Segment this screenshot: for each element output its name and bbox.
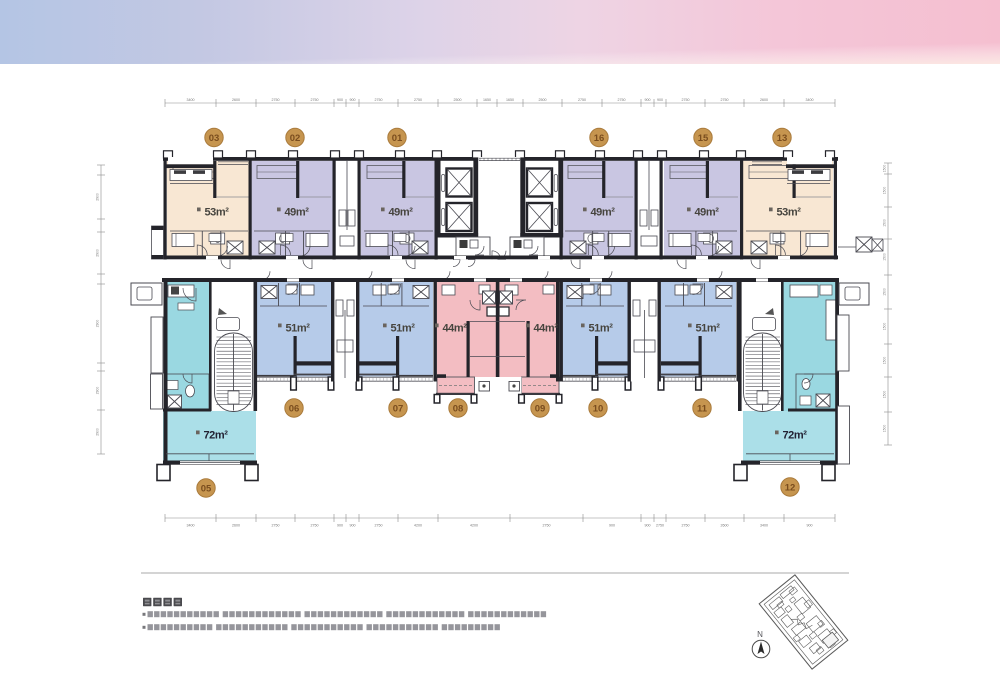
svg-text:08: 08 xyxy=(453,403,464,414)
svg-text:1500: 1500 xyxy=(883,165,887,173)
svg-text:12: 12 xyxy=(785,482,796,493)
svg-text:2750: 2750 xyxy=(543,524,551,528)
svg-text:2750: 2750 xyxy=(272,98,280,102)
svg-text:2600: 2600 xyxy=(721,524,729,528)
svg-text:2750: 2750 xyxy=(375,524,383,528)
svg-text:44m²: 44m² xyxy=(533,323,558,335)
svg-text:1500: 1500 xyxy=(883,219,887,227)
svg-text:2750: 2750 xyxy=(578,98,586,102)
svg-text:2750: 2750 xyxy=(375,98,383,102)
svg-text:2600: 2600 xyxy=(232,524,240,528)
svg-text:2750: 2750 xyxy=(618,98,626,102)
svg-text:51m²: 51m² xyxy=(390,323,415,335)
svg-text:3400: 3400 xyxy=(187,524,195,528)
svg-text:1500: 1500 xyxy=(883,323,887,331)
svg-text:900: 900 xyxy=(657,98,663,102)
svg-text:72m²: 72m² xyxy=(203,430,228,442)
svg-text:900: 900 xyxy=(645,524,651,528)
svg-text:900: 900 xyxy=(807,524,813,528)
svg-text:51m²: 51m² xyxy=(285,323,310,335)
svg-text:1650: 1650 xyxy=(506,98,514,102)
svg-text:16: 16 xyxy=(594,133,605,144)
svg-text:2750: 2750 xyxy=(311,98,319,102)
svg-text:2600: 2600 xyxy=(760,98,768,102)
svg-text:49m²: 49m² xyxy=(590,207,615,219)
svg-text:3400: 3400 xyxy=(806,98,814,102)
svg-text:4200: 4200 xyxy=(414,524,422,528)
svg-text:51m²: 51m² xyxy=(695,323,720,335)
svg-text:900: 900 xyxy=(645,98,651,102)
svg-text:11: 11 xyxy=(697,403,708,414)
svg-text:2750: 2750 xyxy=(682,98,690,102)
svg-text:2500: 2500 xyxy=(454,98,462,102)
svg-text:05: 05 xyxy=(201,483,212,494)
svg-text:1500: 1500 xyxy=(883,425,887,433)
svg-text:53m²: 53m² xyxy=(776,207,801,219)
svg-text:49m²: 49m² xyxy=(284,207,309,219)
svg-text:49m²: 49m² xyxy=(694,207,719,219)
svg-text:2600: 2600 xyxy=(232,98,240,102)
svg-text:2750: 2750 xyxy=(656,524,664,528)
svg-text:1500: 1500 xyxy=(883,187,887,195)
svg-text:900: 900 xyxy=(337,98,343,102)
svg-text:3400: 3400 xyxy=(187,98,195,102)
svg-text:09: 09 xyxy=(535,403,546,414)
svg-text:49m²: 49m² xyxy=(388,207,413,219)
svg-text:1500: 1500 xyxy=(883,288,887,296)
svg-text:4200: 4200 xyxy=(470,524,478,528)
svg-text:03: 03 xyxy=(209,133,220,144)
svg-text:01: 01 xyxy=(392,133,403,144)
svg-text:2900: 2900 xyxy=(96,320,100,328)
svg-text:10: 10 xyxy=(593,403,604,414)
svg-text:44m²: 44m² xyxy=(442,323,467,335)
svg-text:3400: 3400 xyxy=(760,524,768,528)
svg-text:51m²: 51m² xyxy=(588,323,613,335)
svg-text:1500: 1500 xyxy=(883,253,887,261)
svg-text:13: 13 xyxy=(777,133,788,144)
svg-text:1650: 1650 xyxy=(483,98,491,102)
svg-text:2900: 2900 xyxy=(96,428,100,436)
svg-text:53m²: 53m² xyxy=(204,207,229,219)
svg-text:900: 900 xyxy=(337,524,343,528)
svg-text:2750: 2750 xyxy=(272,524,280,528)
svg-text:1500: 1500 xyxy=(883,391,887,399)
svg-text:900: 900 xyxy=(609,524,615,528)
svg-text:900: 900 xyxy=(350,524,356,528)
svg-text:2500: 2500 xyxy=(539,98,547,102)
svg-text:900: 900 xyxy=(350,98,356,102)
svg-text:2900: 2900 xyxy=(96,249,100,257)
svg-text:2750: 2750 xyxy=(414,98,422,102)
svg-text:2750: 2750 xyxy=(682,524,690,528)
svg-text:02: 02 xyxy=(290,133,301,144)
svg-text:06: 06 xyxy=(289,403,300,414)
svg-text:N: N xyxy=(757,630,763,639)
svg-text:2900: 2900 xyxy=(96,387,100,395)
svg-text:15: 15 xyxy=(698,133,709,144)
svg-text:07: 07 xyxy=(393,403,404,414)
svg-text:2750: 2750 xyxy=(721,98,729,102)
svg-text:1500: 1500 xyxy=(883,357,887,365)
svg-text:2750: 2750 xyxy=(311,524,319,528)
svg-text:72m²: 72m² xyxy=(782,430,807,442)
svg-text:2900: 2900 xyxy=(96,193,100,201)
